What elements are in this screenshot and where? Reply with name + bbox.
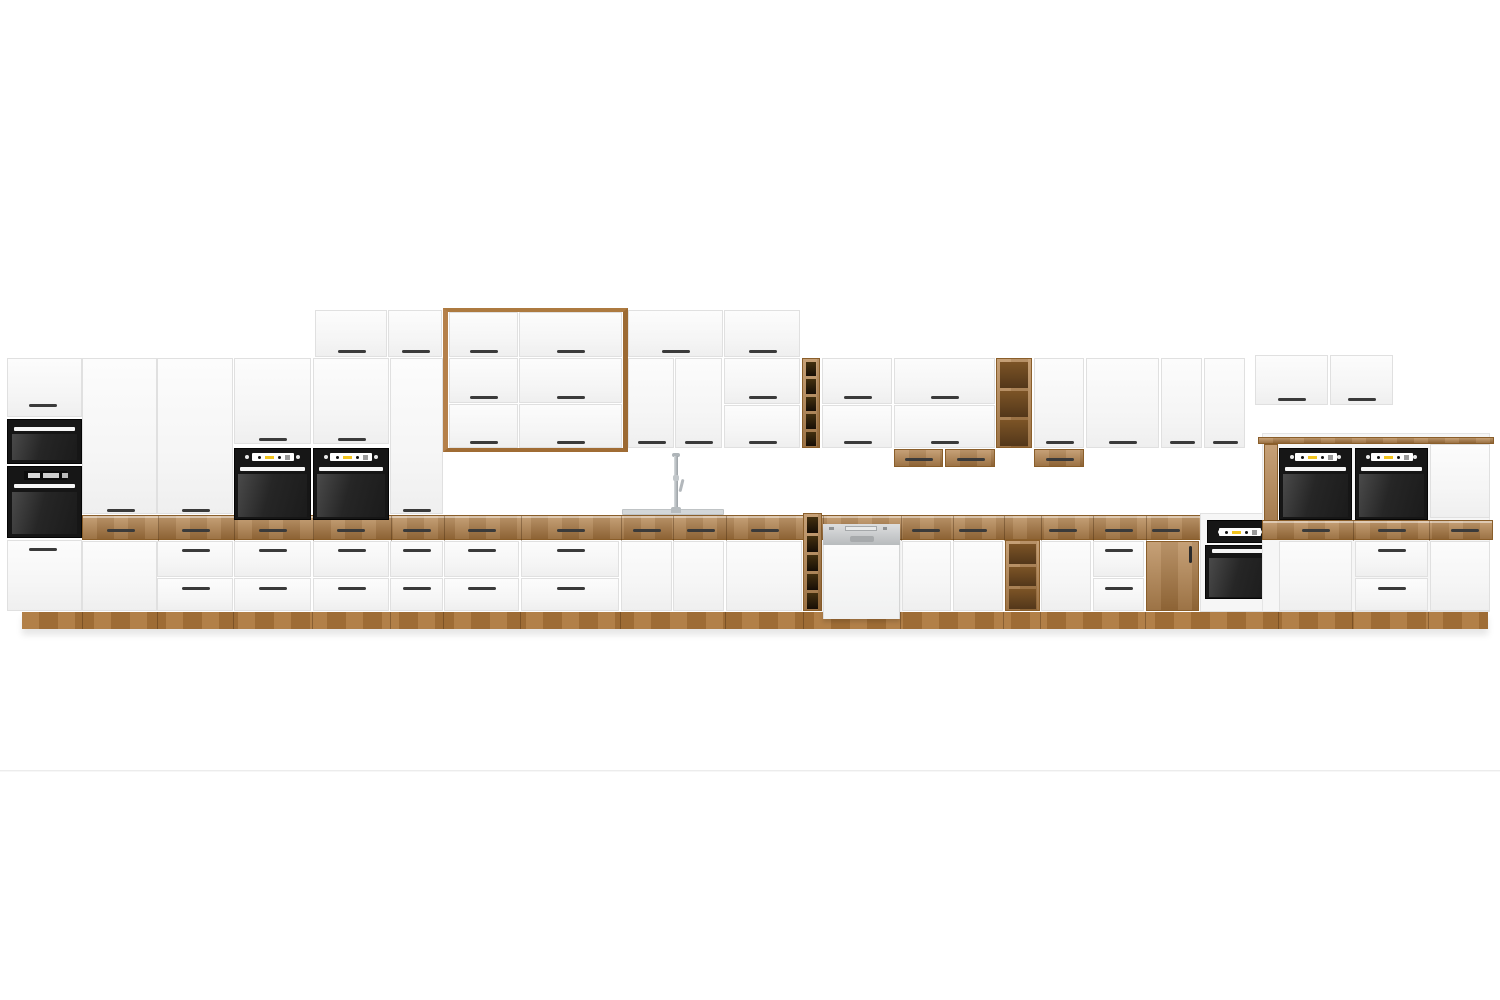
oven-display bbox=[330, 453, 372, 461]
wall-cabinet-door bbox=[449, 404, 518, 448]
wine-rack-cell bbox=[807, 555, 818, 571]
oven-control-dots bbox=[1290, 455, 1294, 459]
handle-icon bbox=[638, 441, 666, 444]
wine-rack-cell bbox=[806, 397, 816, 411]
handle-icon bbox=[403, 529, 431, 532]
microwave-glass bbox=[12, 434, 77, 460]
handle-icon bbox=[107, 529, 135, 532]
handle-icon bbox=[1152, 529, 1180, 532]
built-in-oven bbox=[313, 448, 389, 520]
sideboard-counter-top bbox=[1258, 437, 1494, 444]
tall-unit-door bbox=[7, 358, 82, 417]
handle-icon bbox=[557, 587, 585, 590]
oven-handle-bar bbox=[1285, 467, 1346, 471]
handle-icon bbox=[403, 509, 431, 512]
wall-cabinet-door bbox=[724, 405, 800, 448]
plinth-seam bbox=[1428, 612, 1429, 629]
cabinet-seam bbox=[901, 516, 902, 541]
cabinet-seam bbox=[1146, 516, 1147, 541]
display-segment bbox=[43, 473, 59, 478]
handle-icon bbox=[1378, 587, 1406, 590]
handle-icon bbox=[633, 529, 661, 532]
handle-icon bbox=[470, 441, 498, 444]
handle-icon bbox=[1046, 458, 1074, 461]
dishwasher-door bbox=[823, 545, 900, 619]
oven-control-dots bbox=[374, 455, 378, 459]
handle-icon bbox=[844, 441, 872, 444]
base-drawer bbox=[521, 578, 619, 611]
display-segment bbox=[1404, 455, 1409, 460]
base-drawer bbox=[390, 541, 443, 577]
wall-cabinet-door bbox=[1330, 355, 1393, 405]
faucet-base bbox=[671, 507, 681, 513]
oven-glass bbox=[12, 492, 77, 534]
handle-icon bbox=[1378, 529, 1406, 532]
oven-handle-bar bbox=[1361, 467, 1422, 471]
wall-hanging-drawer bbox=[1034, 449, 1084, 467]
display-segment bbox=[62, 473, 68, 478]
cabinet-seam bbox=[444, 516, 445, 541]
oven-glass bbox=[1359, 474, 1424, 517]
handle-icon bbox=[29, 404, 57, 407]
oven-handle-bar bbox=[240, 467, 305, 471]
cabinet-seam bbox=[521, 516, 522, 541]
control-mark bbox=[883, 527, 887, 530]
display-indicator bbox=[1232, 531, 1241, 534]
wall-cabinet-door bbox=[519, 404, 622, 448]
base-wine-rack bbox=[803, 513, 822, 611]
faucet bbox=[666, 453, 688, 513]
handle-icon bbox=[557, 396, 585, 399]
plinth-seam bbox=[157, 612, 158, 629]
base-drawer bbox=[157, 578, 233, 611]
open-shelf-cell bbox=[1009, 589, 1036, 609]
oven-handle-bar bbox=[319, 467, 383, 471]
display-dot bbox=[1245, 531, 1248, 534]
sink-cabinet-door bbox=[673, 541, 724, 611]
handle-icon bbox=[685, 441, 713, 444]
handle-icon bbox=[687, 529, 715, 532]
control-display bbox=[845, 526, 877, 531]
wall-cabinet-door bbox=[724, 358, 800, 404]
top-cabinet-door bbox=[388, 310, 442, 357]
base-drawer bbox=[1355, 541, 1428, 577]
display-dot bbox=[1397, 456, 1400, 459]
handle-icon bbox=[468, 549, 496, 552]
handle-icon bbox=[751, 529, 779, 532]
handle-icon bbox=[1105, 549, 1133, 552]
handle-icon bbox=[1189, 546, 1192, 563]
wall-cabinet-door bbox=[628, 358, 674, 448]
display-indicator bbox=[343, 456, 352, 459]
sideboard-door bbox=[1279, 541, 1352, 611]
microwave-handle-bar bbox=[14, 427, 75, 431]
handle-icon bbox=[182, 549, 210, 552]
cabinet-seam bbox=[158, 516, 159, 541]
cabinet-seam bbox=[391, 516, 392, 541]
plinth-seam bbox=[1040, 612, 1041, 629]
wall-hanging-drawer bbox=[894, 449, 943, 467]
handle-icon bbox=[959, 529, 987, 532]
handle-icon bbox=[557, 350, 585, 353]
built-in-oven bbox=[1279, 448, 1352, 520]
wall-hanging-drawer bbox=[945, 449, 995, 467]
handle-icon bbox=[1170, 441, 1195, 444]
oven-display bbox=[1295, 453, 1337, 461]
base-drawer bbox=[444, 541, 519, 577]
handle-icon bbox=[1451, 529, 1479, 532]
oven-control-dots bbox=[324, 455, 328, 459]
cabinet-seam bbox=[1093, 516, 1094, 541]
plinth-seam bbox=[312, 612, 313, 629]
handle-icon bbox=[29, 548, 57, 551]
dishwasher-handle-recess bbox=[850, 536, 874, 542]
cabinet-seam bbox=[1004, 516, 1005, 541]
wine-rack-cell bbox=[806, 414, 816, 428]
display-segment bbox=[28, 473, 40, 478]
plinth-seam bbox=[520, 612, 521, 629]
handle-icon bbox=[1348, 398, 1376, 401]
base-cabinet-door bbox=[902, 541, 951, 611]
tall-cabinet-door bbox=[390, 358, 443, 514]
wall-cabinet-door bbox=[822, 358, 892, 404]
base-drawer bbox=[1355, 578, 1428, 611]
handle-icon bbox=[749, 396, 777, 399]
handle-icon bbox=[338, 350, 366, 353]
tall-unit-drawer bbox=[7, 540, 82, 611]
open-shelf-cell bbox=[1000, 362, 1028, 388]
oven-control-dots bbox=[1366, 455, 1370, 459]
wall-cabinet-door bbox=[894, 405, 995, 448]
wall-cabinet-door bbox=[1086, 358, 1159, 448]
wine-rack-cell bbox=[806, 362, 816, 376]
plinth-seam bbox=[1145, 612, 1146, 629]
wine-rack-cell bbox=[807, 593, 818, 609]
counter-band-right bbox=[1262, 520, 1493, 540]
display-segment bbox=[1328, 455, 1333, 460]
sideboard-door bbox=[1430, 444, 1490, 518]
base-drawer bbox=[444, 578, 519, 611]
handle-icon bbox=[468, 529, 496, 532]
base-cabinet-door bbox=[953, 541, 1003, 611]
handle-icon bbox=[1278, 398, 1306, 401]
base-open-shelf bbox=[1005, 540, 1040, 611]
display-segment bbox=[285, 455, 290, 460]
sideboard-door bbox=[1430, 541, 1490, 611]
handle-icon bbox=[337, 529, 365, 532]
handle-icon bbox=[259, 549, 287, 552]
handle-icon bbox=[259, 587, 287, 590]
oven-display bbox=[1371, 453, 1413, 461]
display-indicator bbox=[1308, 456, 1317, 459]
display-dot bbox=[1225, 531, 1228, 534]
cabinet-seam bbox=[726, 516, 727, 541]
plinth-seam bbox=[1003, 612, 1004, 629]
dishwasher-control-panel bbox=[823, 524, 900, 545]
handle-icon bbox=[470, 350, 498, 353]
tall-cabinet-door bbox=[157, 358, 233, 514]
display-dot bbox=[1301, 456, 1304, 459]
base-drawer bbox=[313, 541, 389, 577]
handle-icon bbox=[259, 529, 287, 532]
base-drawer bbox=[521, 541, 619, 577]
cabinet-seam bbox=[673, 516, 674, 541]
base-drawer bbox=[157, 541, 233, 577]
plinth-seam bbox=[900, 612, 901, 629]
wall-cabinet-door bbox=[449, 358, 518, 403]
handle-icon bbox=[557, 529, 585, 532]
base-drawer bbox=[313, 578, 389, 611]
handle-icon bbox=[844, 396, 872, 399]
cabinet-seam bbox=[953, 516, 954, 541]
handle-icon bbox=[662, 350, 690, 353]
base-drawer bbox=[234, 578, 311, 611]
handle-icon bbox=[259, 438, 287, 441]
handle-icon bbox=[403, 549, 431, 552]
handle-icon bbox=[749, 350, 777, 353]
display-segment bbox=[1252, 530, 1257, 535]
cabinet-seam bbox=[621, 516, 622, 541]
wall-cabinet-door bbox=[1204, 358, 1245, 448]
plinth-seam bbox=[803, 612, 804, 629]
wall-cabinet-door bbox=[519, 358, 622, 403]
handle-icon bbox=[912, 529, 940, 532]
open-shelf-cell bbox=[1009, 567, 1036, 587]
plinth-seam bbox=[82, 612, 83, 629]
top-cabinet-door bbox=[628, 310, 723, 357]
handle-icon bbox=[468, 587, 496, 590]
faucet-lever bbox=[678, 479, 684, 492]
oven-handle-bar bbox=[14, 484, 75, 488]
oven-housing-door bbox=[313, 358, 389, 444]
handle-icon bbox=[1302, 529, 1330, 532]
handle-icon bbox=[107, 509, 135, 512]
plinth bbox=[22, 612, 1488, 629]
tall-cabinet-door bbox=[82, 358, 157, 514]
wine-rack-cell bbox=[807, 517, 818, 533]
oven-display bbox=[252, 453, 294, 461]
handle-icon bbox=[1046, 441, 1074, 444]
wine-rack-cell bbox=[807, 574, 818, 590]
counter-top-edge bbox=[1263, 521, 1492, 523]
wall-cabinet-door bbox=[1255, 355, 1328, 405]
plinth-seam bbox=[1278, 612, 1279, 629]
handle-icon bbox=[557, 549, 585, 552]
oven-control-dots bbox=[245, 455, 249, 459]
cabinet-seam bbox=[1353, 521, 1354, 541]
wood-cabinet-door bbox=[1146, 541, 1199, 611]
open-shelf-cell bbox=[1000, 391, 1028, 417]
display-dot bbox=[258, 456, 261, 459]
top-cabinet-door bbox=[519, 312, 622, 357]
handle-icon bbox=[338, 549, 366, 552]
base-drawer bbox=[1093, 541, 1144, 577]
floor-line-soft bbox=[0, 771, 1500, 772]
plinth-seam bbox=[390, 612, 391, 629]
handle-icon bbox=[957, 458, 985, 461]
tall-cabinet-lower-door bbox=[82, 541, 157, 611]
oven-control-dots bbox=[1337, 455, 1341, 459]
handle-icon bbox=[182, 509, 210, 512]
base-drawer bbox=[1093, 578, 1144, 611]
built-in-oven-compact bbox=[7, 466, 82, 538]
display-indicator bbox=[1384, 456, 1393, 459]
oven-glass bbox=[238, 474, 307, 517]
display-dot bbox=[356, 456, 359, 459]
wall-cabinet-door bbox=[1034, 358, 1084, 448]
display-segment bbox=[363, 455, 368, 460]
handle-icon bbox=[931, 396, 959, 399]
handle-icon bbox=[931, 441, 959, 444]
handle-icon bbox=[749, 441, 777, 444]
wall-cabinet-door bbox=[1161, 358, 1202, 448]
handle-icon bbox=[905, 458, 933, 461]
cabinet-seam bbox=[1041, 516, 1042, 541]
control-mark bbox=[829, 527, 834, 530]
handle-icon bbox=[470, 396, 498, 399]
built-in-microwave bbox=[7, 419, 82, 464]
faucet-pipe bbox=[674, 456, 678, 513]
faucet-joint bbox=[673, 475, 679, 481]
base-drawer bbox=[390, 578, 443, 611]
kitchen-cabinet-set-render bbox=[0, 0, 1500, 1000]
handle-icon bbox=[402, 350, 430, 353]
handle-icon bbox=[1378, 549, 1406, 552]
base-cabinet-door bbox=[1041, 541, 1091, 611]
handle-icon bbox=[403, 587, 431, 590]
oven-glass bbox=[317, 474, 385, 517]
wine-rack-cell bbox=[806, 379, 816, 393]
handle-icon bbox=[1109, 441, 1137, 444]
dishwasher bbox=[823, 524, 900, 619]
base-cabinet-door bbox=[726, 541, 802, 611]
handle-icon bbox=[338, 438, 366, 441]
handle-icon bbox=[182, 529, 210, 532]
built-in-oven bbox=[1355, 448, 1428, 520]
oven-glass bbox=[1283, 474, 1348, 517]
oven-housing-door bbox=[234, 358, 311, 444]
base-drawer bbox=[234, 541, 311, 577]
wall-wine-rack bbox=[802, 358, 820, 448]
display-dot bbox=[278, 456, 281, 459]
plinth-seam bbox=[725, 612, 726, 629]
open-shelf-cell bbox=[1000, 420, 1028, 446]
built-in-oven bbox=[234, 448, 311, 520]
handle-icon bbox=[1213, 441, 1238, 444]
handle-icon bbox=[557, 441, 585, 444]
display-dot bbox=[1321, 456, 1324, 459]
plinth-seam bbox=[233, 612, 234, 629]
handle-icon bbox=[338, 587, 366, 590]
plinth-seam bbox=[620, 612, 621, 629]
plinth-seam bbox=[443, 612, 444, 629]
oven-display bbox=[24, 471, 67, 480]
display-dot bbox=[336, 456, 339, 459]
wall-open-shelf bbox=[996, 358, 1032, 448]
display-dot bbox=[1377, 456, 1380, 459]
oven-display bbox=[1219, 528, 1261, 536]
handle-icon bbox=[182, 587, 210, 590]
oven-control-dots bbox=[296, 455, 300, 459]
handle-icon bbox=[1049, 529, 1077, 532]
wine-rack-cell bbox=[807, 536, 818, 552]
handle-icon bbox=[1105, 587, 1133, 590]
sink-cabinet-door bbox=[621, 541, 672, 611]
display-indicator bbox=[265, 456, 274, 459]
top-cabinet-door bbox=[315, 310, 387, 357]
wall-cabinet-door bbox=[822, 405, 892, 448]
wine-rack-cell bbox=[806, 432, 816, 446]
top-cabinet-door bbox=[449, 312, 518, 357]
plinth-seam bbox=[1352, 612, 1353, 629]
wall-cabinet-door bbox=[675, 358, 722, 448]
handle-icon bbox=[1105, 529, 1133, 532]
wall-cabinet-door bbox=[894, 358, 995, 404]
oven-handle-bar bbox=[1212, 549, 1268, 553]
open-shelf-cell bbox=[1009, 544, 1036, 564]
oven-control-dots bbox=[1413, 455, 1417, 459]
top-cabinet-door bbox=[724, 310, 800, 357]
cabinet-seam bbox=[1429, 521, 1430, 541]
